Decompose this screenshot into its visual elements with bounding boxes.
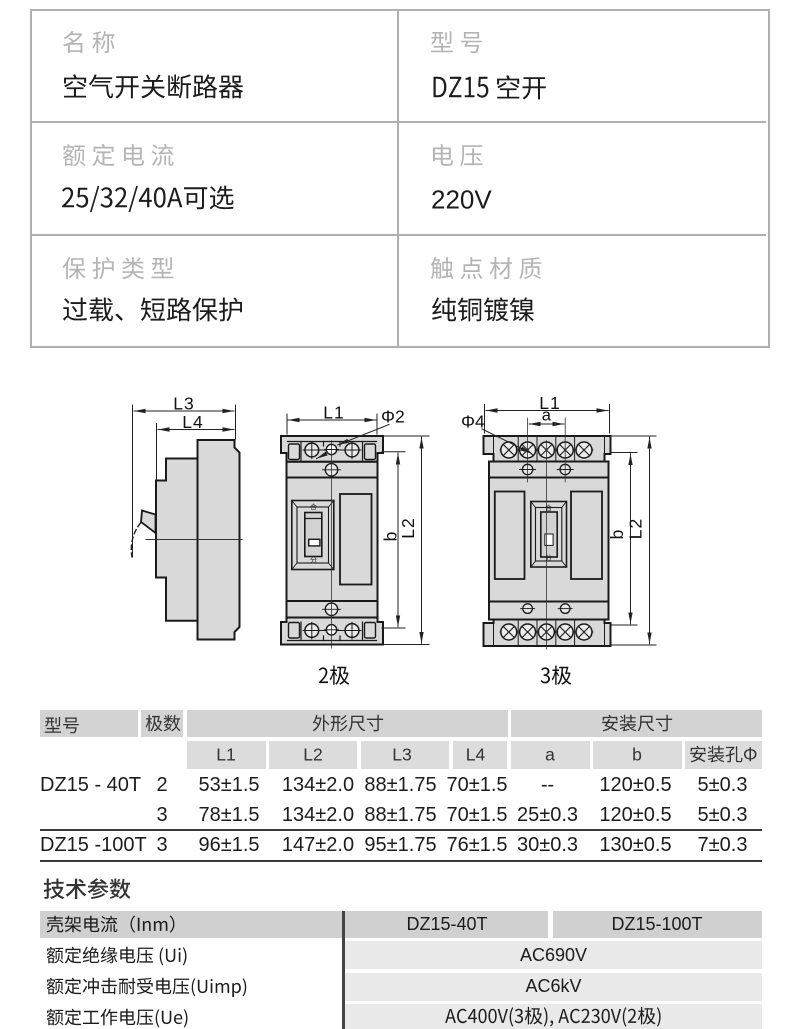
svg-text:70±1.5: 70±1.5	[446, 804, 507, 826]
svg-text:76±1.5: 76±1.5	[446, 834, 507, 856]
svg-text:134±2.0: 134±2.0	[282, 804, 354, 826]
svg-text:96±1.5: 96±1.5	[198, 834, 259, 856]
svg-text:L2: L2	[303, 745, 322, 765]
svg-text:DZ15-40T: DZ15-40T	[406, 914, 487, 934]
svg-text:5±0.3: 5±0.3	[698, 774, 748, 796]
svg-text:L4: L4	[466, 745, 486, 765]
svg-text:53±1.5: 53±1.5	[198, 774, 259, 796]
svg-text:88±1.75: 88±1.75	[364, 804, 436, 826]
svg-text:220V: 220V	[431, 185, 492, 215]
svg-text:5±0.3: 5±0.3	[698, 804, 748, 826]
svg-text:78±1.5: 78±1.5	[198, 804, 259, 826]
svg-text:95±1.75: 95±1.75	[364, 834, 436, 856]
svg-text:AC690V: AC690V	[520, 945, 587, 965]
svg-text:7±0.3: 7±0.3	[698, 834, 748, 856]
svg-text:130±0.5: 130±0.5	[599, 834, 671, 856]
svg-text:3: 3	[156, 804, 167, 826]
svg-text:134±2.0: 134±2.0	[282, 774, 354, 796]
svg-text:147±2.0: 147±2.0	[282, 834, 354, 856]
svg-text:L1: L1	[216, 745, 235, 765]
svg-text:AC6kV: AC6kV	[525, 976, 581, 996]
svg-text:88±1.75: 88±1.75	[364, 774, 436, 796]
svg-text:DZ15 -100T: DZ15 -100T	[40, 834, 147, 856]
svg-text:DZ15 - 40T: DZ15 - 40T	[40, 774, 141, 796]
svg-text:70±1.5: 70±1.5	[446, 774, 507, 796]
svg-text:30±0.3: 30±0.3	[517, 834, 578, 856]
svg-text:DZ15-100T: DZ15-100T	[611, 914, 702, 934]
svg-text:--: --	[541, 774, 554, 796]
svg-text:2: 2	[156, 774, 167, 796]
svg-text:a: a	[545, 745, 555, 765]
svg-text:b: b	[632, 745, 642, 765]
svg-text:L3: L3	[392, 745, 411, 765]
svg-text:3: 3	[156, 834, 167, 856]
svg-text:25±0.3: 25±0.3	[517, 804, 578, 826]
svg-text:120±0.5: 120±0.5	[599, 774, 671, 796]
svg-text:120±0.5: 120±0.5	[599, 804, 671, 826]
